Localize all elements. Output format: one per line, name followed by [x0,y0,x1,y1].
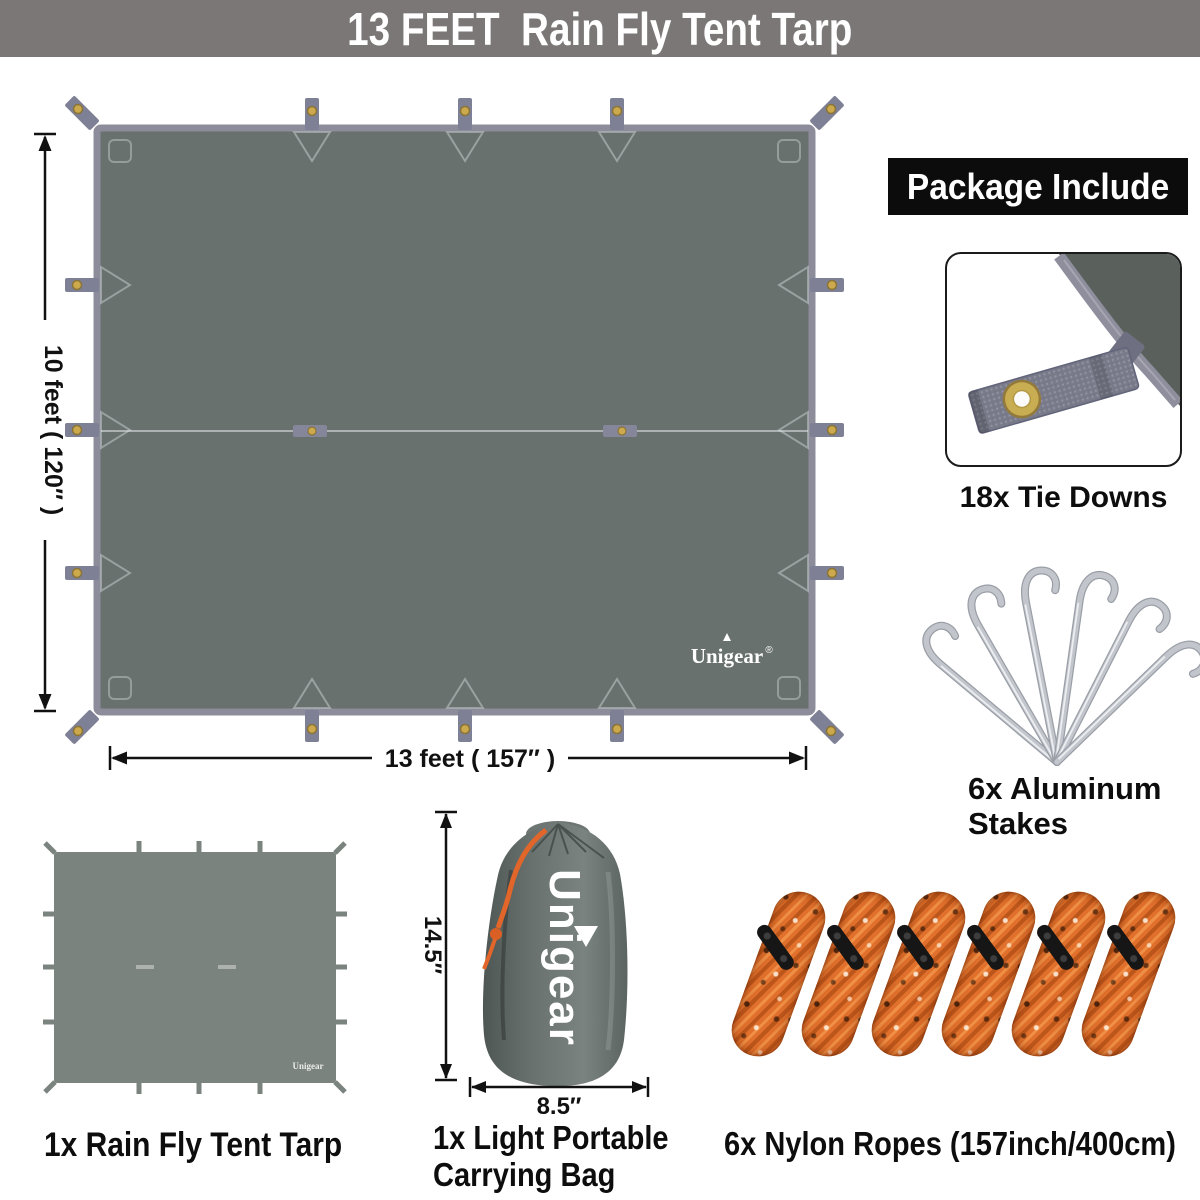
tie-down-photo [945,252,1182,467]
package-include-header: Package Include [888,158,1188,215]
stakes-label: 6x Aluminum Stakes [968,772,1162,841]
arrow-left-icon [111,752,127,765]
rope-tensioner-icon [824,922,867,973]
rope-tensioner-icon [754,922,797,973]
mini-tarp-body [54,852,336,1083]
bag-height-label: 14.5″ [419,916,446,975]
package-include-title: Package Include [907,166,1169,208]
rope-tensioner-icon [1034,922,1077,973]
bag-figure: 14.5″ Unigear [408,800,698,1118]
height-dimension-label: 10 feet ( 120″ ) [39,345,67,515]
bag-brand-text: Unigear [540,869,589,1047]
arrow-up-icon [39,135,52,151]
rope-tensioner-icon [964,922,1007,973]
tarp-diagram: Unigear ® 10 feet ( 120″ ) 13 feet ( 157… [20,85,850,785]
webbing-strap [968,347,1139,434]
arrow-down-icon [39,694,52,710]
carrying-bag: Unigear [483,821,628,1086]
stakes-image [912,550,1200,772]
brand-text: Unigear [691,644,763,668]
bag-width-label: 8.5″ [537,1093,582,1118]
width-dimension-label: 13 feet ( 157″ ) [385,745,555,773]
ropes-label: 6x Nylon Ropes (157inch/400cm) [724,1126,1200,1163]
product-infographic: 13 FEET Rain Fly Tent Tarp [0,0,1200,1200]
title-banner: 13 FEET Rain Fly Tent Tarp [0,0,1200,57]
brand-registered-mark: ® [765,645,773,656]
rain-fly-item-label: 1x Rain Fly Tent Tarp [44,1126,383,1164]
stakes-label-line2: Stakes [968,807,1162,842]
stake-icons [918,568,1200,772]
ropes-image [752,888,1200,1096]
page-title: 13 FEET Rain Fly Tent Tarp [347,2,852,56]
arrow-right-icon [789,752,805,765]
rope-tensioner-icon [894,922,937,973]
rope-tensioner-icon [1104,922,1147,973]
stakes-label-line1: 6x Aluminum [968,772,1162,807]
mini-tarp-image: Unigear [40,840,350,1096]
mini-tarp-brand: Unigear [293,1061,324,1071]
tie-downs-label: 18x Tie Downs [945,481,1182,515]
tie-down-illustration [947,254,1180,465]
tarp-body [97,128,812,712]
bag-item-label: 1x Light Portable Carrying Bag [433,1120,701,1194]
